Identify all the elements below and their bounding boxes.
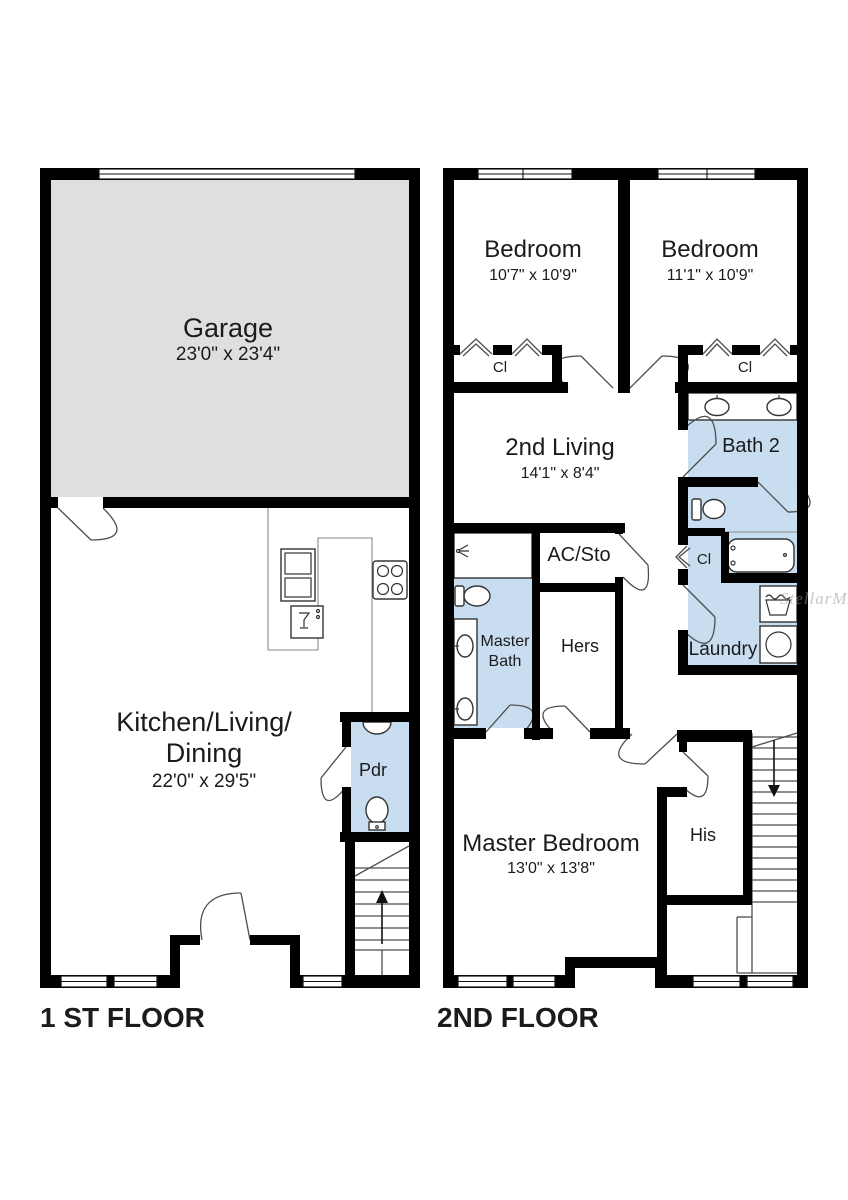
closet-right-label: Cl [738,359,752,376]
closet-hall-label: Cl [697,551,711,568]
first-floor-title: 1 ST FLOOR [40,1002,205,1033]
watermark: StellarMLS [780,589,848,608]
garage-label: Garage [183,313,273,343]
master-bedroom-label: Master Bedroom [462,830,639,857]
kitchen-label-line2: Dining [166,738,243,768]
bedroom-left-dims: 10'7" x 10'9" [489,267,577,284]
ac-storage-door-arc [619,534,648,590]
washer-icon [760,626,797,663]
first-floor-plan: Garage 23'0" x 23'4" Kitchen/Living/ Din… [40,168,420,1033]
bedroom-left-label: Bedroom [484,236,581,263]
bedroom-right-dims: 11'1" x 10'9" [667,267,754,284]
staircase-up-icon [355,846,409,975]
bedroom-right-label: Bedroom [661,236,758,263]
garage-door [99,169,355,179]
second-floor-plan: Bedroom 10'7" x 10'9" Bedroom 11'1" x 10… [437,168,810,1033]
master-toilet-icon [455,586,490,606]
second-living-label: 2nd Living [505,434,614,461]
bath2-toilet-icon [692,499,725,520]
laundry-label: Laundry [689,639,758,660]
stove-icon [373,561,407,599]
dishwasher-icon [291,606,323,638]
second-living-dims: 14'1" x 8'4" [521,465,600,482]
kitchen-dims: 22'0" x 29'5" [152,771,256,792]
shower-icon [454,533,532,578]
hers-closet-label: Hers [561,636,599,656]
master-bath-label-line2: Bath [489,653,522,670]
front-door-arc [201,893,250,940]
garage-dims: 23'0" x 23'4" [176,344,280,365]
powder-toilet-icon [366,797,388,830]
master-vanity-sink-icon [454,619,477,725]
master-bath-label-line1: Master [481,633,531,650]
garage-entry-door-arc [58,508,117,540]
his-closet-label: His [690,825,716,845]
second-floor-title: 2ND FLOOR [437,1002,599,1033]
kitchen-sink-icon [281,549,315,601]
floorplan-page: Garage 23'0" x 23'4" Kitchen/Living/ Din… [0,0,848,1200]
master-bedroom-dims: 13'0" x 13'8" [507,860,595,877]
powder-label: Pdr [359,760,387,780]
kitchen-label-line1: Kitchen/Living/ [116,707,292,737]
floor-plan-canvas: Garage 23'0" x 23'4" Kitchen/Living/ Din… [0,0,848,1200]
bath2-label: Bath 2 [722,435,780,457]
closet-left-label: Cl [493,359,507,376]
ac-storage-label: AC/Sto [547,544,610,566]
